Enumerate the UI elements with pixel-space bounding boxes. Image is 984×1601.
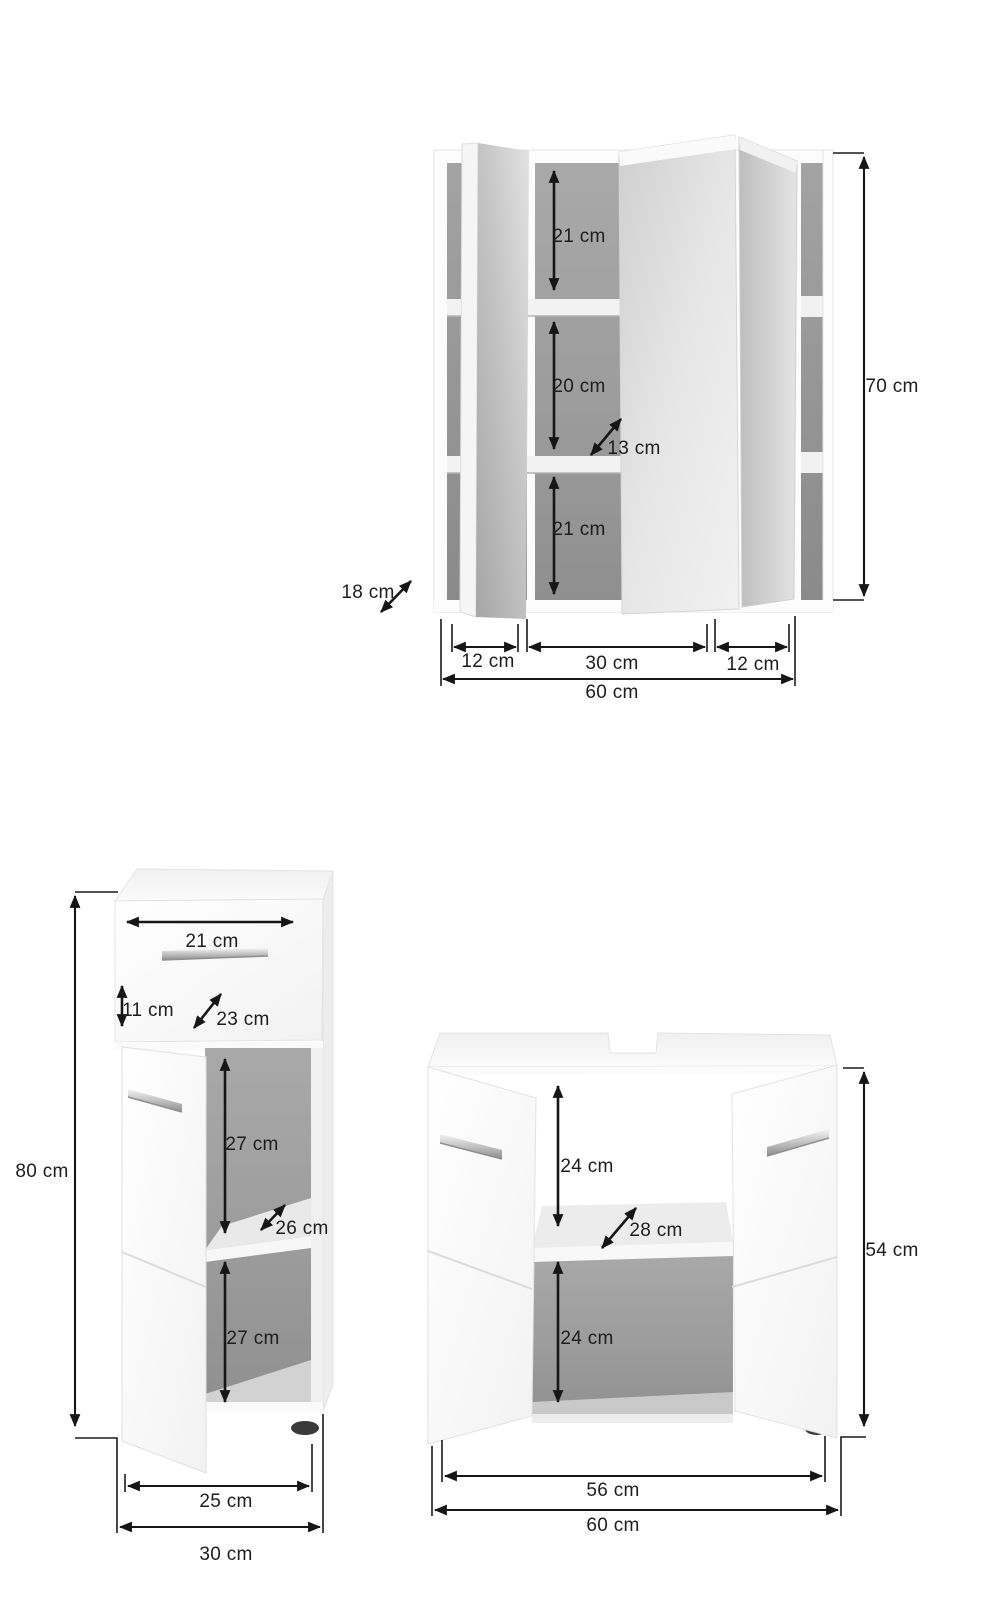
dim-label-total-width: 60 cm <box>585 682 638 703</box>
dim-label-compartment-top: 27 cm <box>225 1134 278 1155</box>
mirror-cabinet-figure: 21 cm 20 cm 13 cm 21 cm 70 cm 18 cm 12 c… <box>341 135 918 703</box>
base-cabinet-door <box>122 1047 206 1473</box>
dim-label-total-width: 60 cm <box>586 1515 639 1536</box>
base-cabinet-figure: 21 cm 11 cm 23 cm 27 cm 26 cm 27 cm 80 c… <box>15 869 333 1565</box>
shelf-stub <box>801 452 823 473</box>
shelf-stub <box>801 296 823 317</box>
dim-label-height: 80 cm <box>15 1161 68 1182</box>
base-cabinet-side-panel <box>323 871 333 1411</box>
furniture-dimension-diagram-page: 21 cm 20 cm 13 cm 21 cm 70 cm 18 cm 12 c… <box>0 0 984 1601</box>
mirror-door-middle-glass <box>619 135 739 614</box>
washbasin-door-left <box>428 1067 536 1444</box>
washbasin-door-left-front <box>428 1067 536 1444</box>
dim-label-door-right-width: 12 cm <box>726 654 779 675</box>
height-connector <box>841 1437 866 1516</box>
mirror-door-left-edge <box>460 143 478 617</box>
dim-label-height: 70 cm <box>865 376 918 397</box>
dim-label-total-width: 30 cm <box>199 1544 252 1565</box>
dim-label-drawer-depth: 23 cm <box>216 1009 269 1030</box>
dim-label-inner-depth: 28 cm <box>629 1220 682 1241</box>
dim-label-compartment-top: 24 cm <box>560 1156 613 1177</box>
height-connector <box>75 1438 117 1533</box>
dim-label-door-left-width: 12 cm <box>461 651 514 672</box>
base-cabinet-bottom-rail <box>205 1402 323 1412</box>
furniture-dimension-diagram: 21 cm 20 cm 13 cm 21 cm 70 cm 18 cm 12 c… <box>0 0 984 1601</box>
mirror-door-right-facet-glass <box>739 137 797 607</box>
dim-label-inner-depth: 13 cm <box>607 438 660 459</box>
washbasin-cabinet-top-face <box>428 1033 837 1067</box>
dim-label-height: 54 cm <box>865 1240 918 1261</box>
base-cabinet-door-front <box>122 1047 206 1473</box>
mirror-cabinet-right-panel <box>823 150 833 612</box>
cabinet-foot <box>291 1421 319 1435</box>
dim-label-compartment-bottom: 21 cm <box>552 519 605 540</box>
washbasin-cabinet-top-front-edge <box>428 1066 837 1075</box>
washbasin-cabinet-figure: 24 cm 28 cm 24 cm 54 cm 56 cm 60 cm <box>428 1033 919 1536</box>
dim-label-depth: 18 cm <box>341 582 394 603</box>
washbasin-door-right-front <box>732 1065 837 1438</box>
dim-label-compartment-middle: 20 cm <box>552 376 605 397</box>
dim-label-drawer-height: 11 cm <box>122 1000 174 1021</box>
dim-label-inner-depth: 26 cm <box>275 1218 328 1239</box>
mirror-door-middle <box>619 135 797 614</box>
washbasin-door-right <box>732 1065 837 1438</box>
dim-label-door-middle-width: 30 cm <box>585 653 638 674</box>
dim-label-drawer-width: 21 cm <box>185 931 238 952</box>
dim-label-inner-width: 56 cm <box>586 1480 639 1501</box>
mirror-cabinet-right-bay-interior <box>801 163 823 600</box>
washbasin-cabinet-bottom-rail <box>532 1414 733 1423</box>
dim-label-compartment-bottom: 27 cm <box>226 1328 279 1349</box>
dim-label-compartment-top: 21 cm <box>552 226 605 247</box>
mirror-door-left <box>460 143 529 619</box>
mirror-door-left-glass <box>476 143 529 619</box>
dim-label-door-width: 25 cm <box>199 1491 252 1512</box>
dim-label-compartment-bottom: 24 cm <box>560 1328 613 1349</box>
base-cabinet-top-face <box>115 869 333 901</box>
